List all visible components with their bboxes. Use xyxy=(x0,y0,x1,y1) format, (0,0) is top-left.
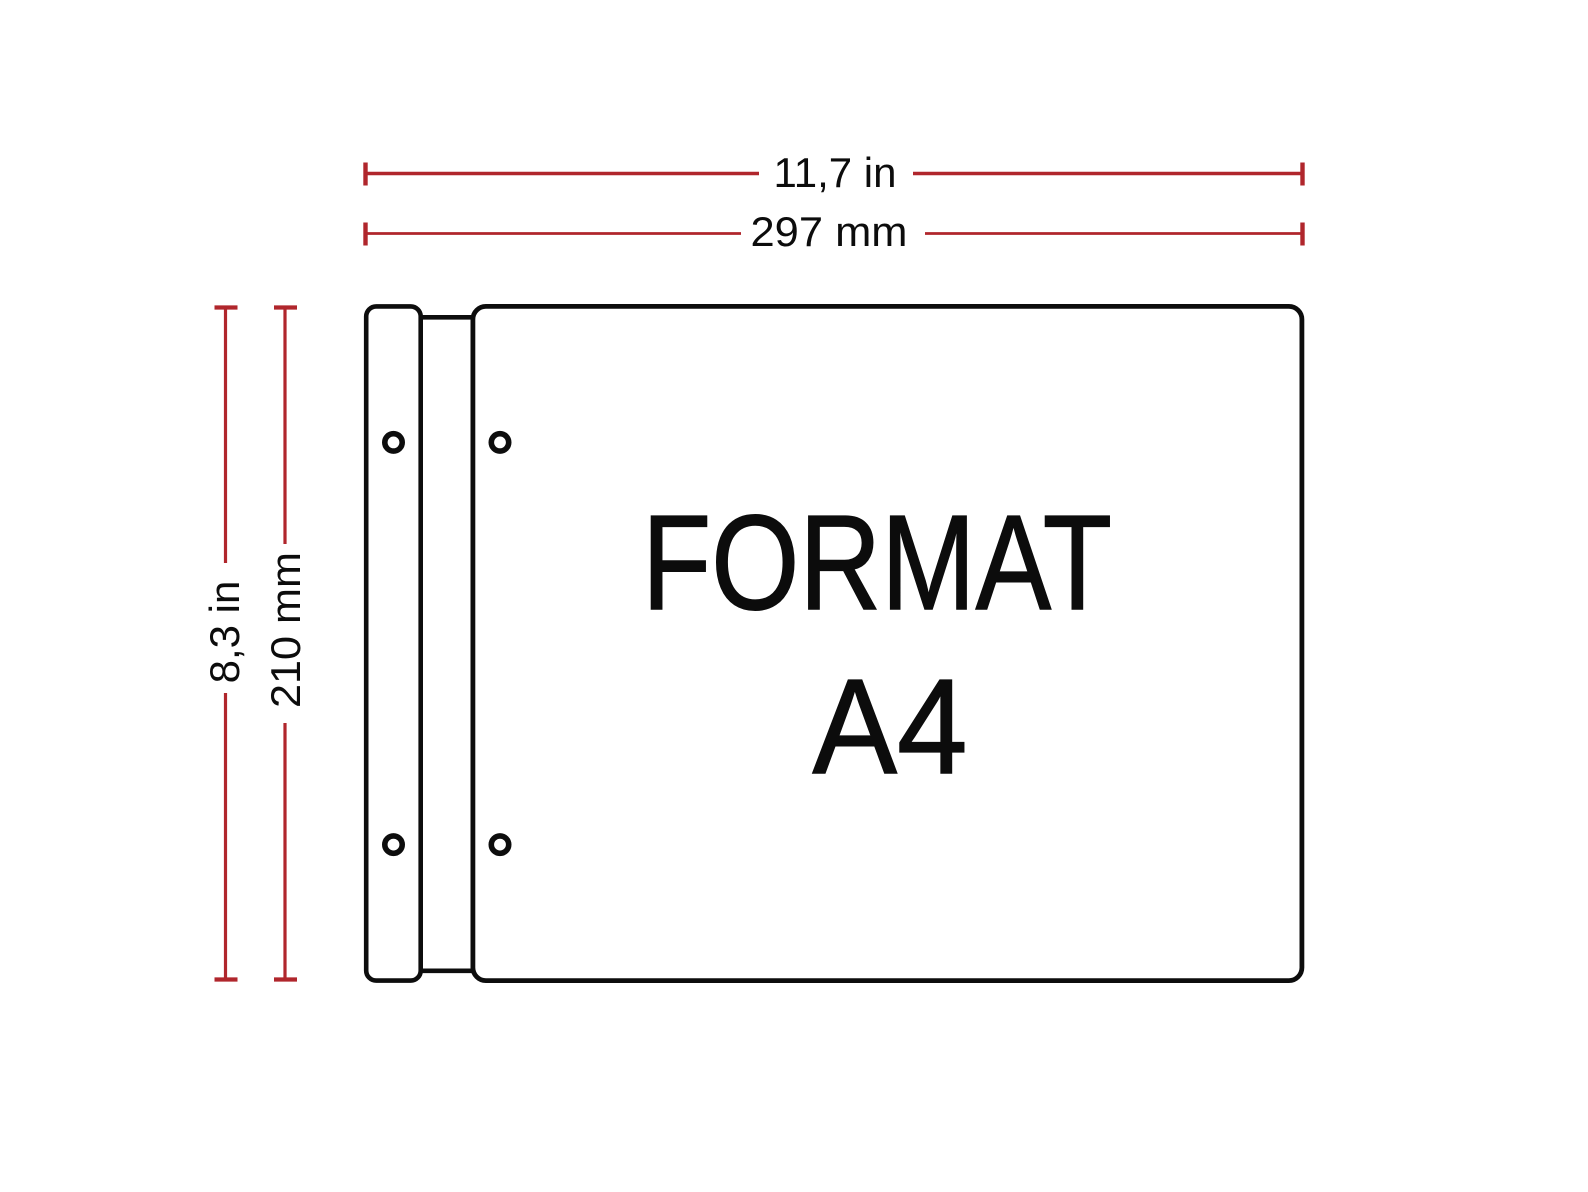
svg-text:FORMAT: FORMAT xyxy=(642,487,1112,638)
svg-text:11,7 in: 11,7 in xyxy=(774,149,897,196)
svg-text:210 mm: 210 mm xyxy=(262,552,309,708)
svg-text:8,3 in: 8,3 in xyxy=(201,581,248,684)
svg-text:297 mm: 297 mm xyxy=(751,208,908,255)
svg-text:A4: A4 xyxy=(813,651,968,802)
